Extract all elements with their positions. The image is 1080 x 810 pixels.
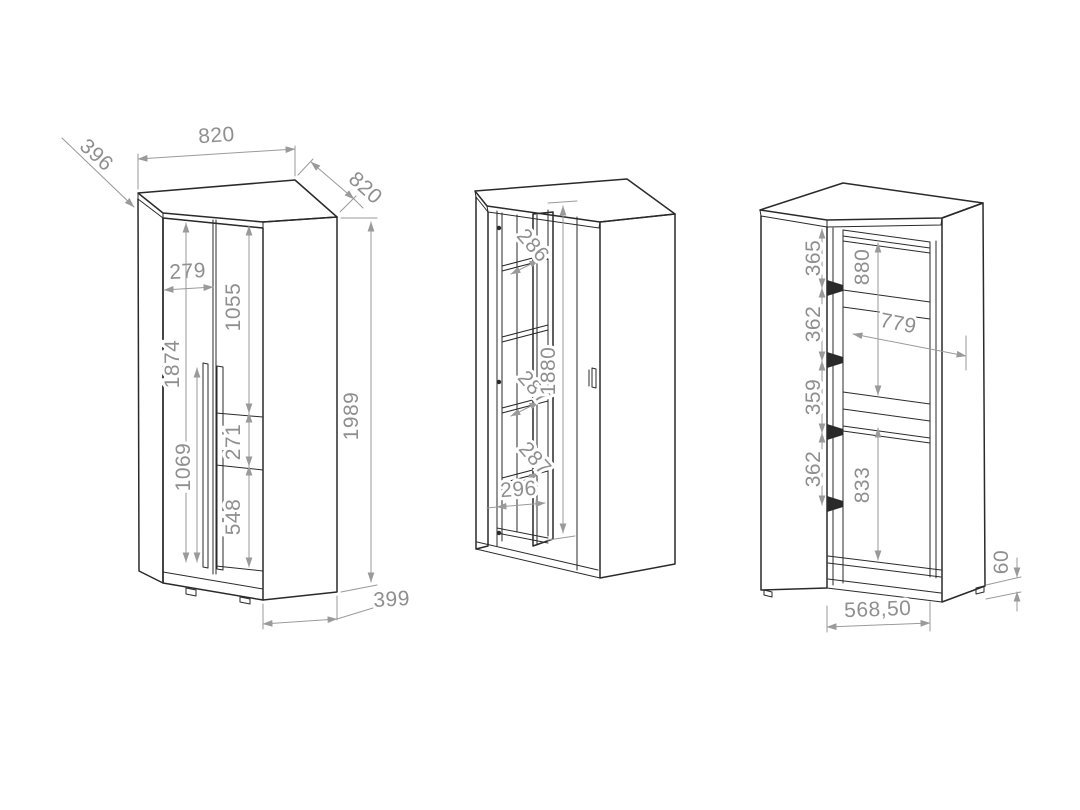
dim-pitch-4-label: 362 <box>802 451 825 488</box>
technical-drawing-canvas: 820 396 820 1989 399 279 1874 1069 1055 <box>0 0 1080 810</box>
dim-door-front-width-label: 279 <box>169 259 207 284</box>
dim-lower-panel-label: 548 <box>222 499 245 536</box>
hinge-dot-bottom <box>497 531 501 535</box>
dim-pitch-2-label: 362 <box>802 306 825 343</box>
dim-shelf-width-label: 296 <box>500 477 538 502</box>
dim-side-width-label: 399 <box>373 587 411 612</box>
dim-base-height-label: 60 <box>990 550 1013 574</box>
dim-interior-height-label: 1880 <box>537 347 560 396</box>
dim-base-width-label: 568,50 <box>844 597 912 622</box>
dim-pitch-3-label: 359 <box>802 379 825 416</box>
dim-pitch-1-label: 365 <box>802 240 825 277</box>
hinge-dot-middle <box>497 380 501 384</box>
hinge-dot-top <box>497 226 501 230</box>
dim-handle-length-label: 1069 <box>172 443 195 492</box>
dim-upper-hang-height-label: 880 <box>851 249 874 286</box>
technical-drawing-page: 820 396 820 1989 399 279 1874 1069 1055 <box>0 0 1080 810</box>
dim-lower-hang-height-label: 833 <box>851 467 874 504</box>
dim-top-width-label: 820 <box>198 123 236 148</box>
dim-total-height-label: 1989 <box>340 392 363 441</box>
dim-upper-panel-label: 1055 <box>222 283 245 332</box>
dim-middle-panel-label: 271 <box>222 424 245 461</box>
dim-door-height-label: 1874 <box>161 340 184 389</box>
